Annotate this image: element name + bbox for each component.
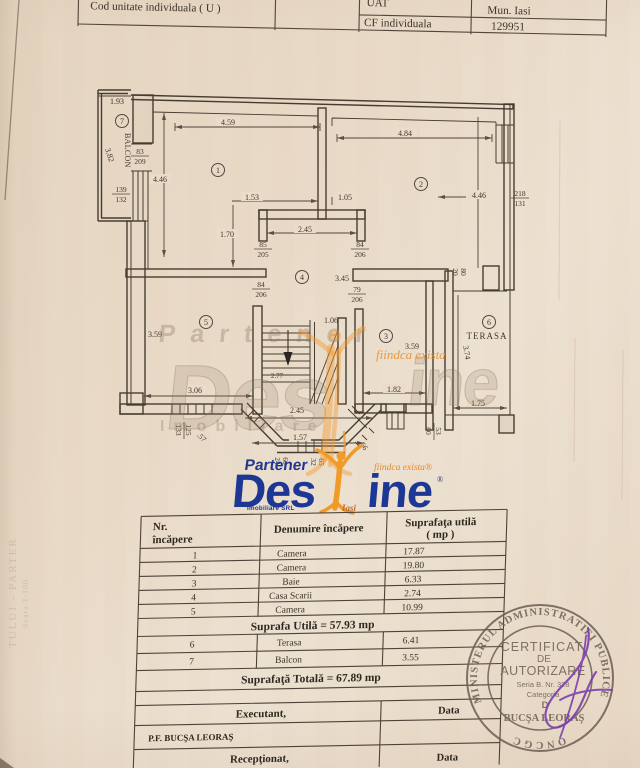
svg-text:85: 85 xyxy=(259,240,267,249)
svg-text:1.70: 1.70 xyxy=(220,230,234,239)
svg-text:Denumire încăpere: Denumire încăpere xyxy=(274,522,364,536)
svg-text:205: 205 xyxy=(257,250,269,259)
svg-text:4.59: 4.59 xyxy=(221,118,235,127)
svg-text:Camera: Camera xyxy=(275,605,306,616)
svg-text:79: 79 xyxy=(353,285,361,294)
svg-text:209: 209 xyxy=(134,157,146,166)
svg-text:încăpere: încăpere xyxy=(151,533,193,546)
svg-text:218: 218 xyxy=(514,189,526,198)
svg-text:Recepţionat,: Recepţionat, xyxy=(230,753,290,766)
svg-text:1: 1 xyxy=(192,551,197,561)
svg-text:3: 3 xyxy=(191,579,196,589)
svg-text:6.33: 6.33 xyxy=(405,575,422,585)
svg-text:TULUI - PARTER: TULUI - PARTER xyxy=(7,537,19,648)
svg-text:Data: Data xyxy=(436,752,459,763)
svg-text:Suprafa Utilă = 57.93 mp: Suprafa Utilă = 57.93 mp xyxy=(251,619,375,633)
svg-text:129951: 129951 xyxy=(491,21,525,34)
svg-text:4.46: 4.46 xyxy=(472,191,486,200)
svg-text:3.82: 3.82 xyxy=(103,147,116,163)
svg-text:Data: Data xyxy=(438,705,461,716)
svg-text:132: 132 xyxy=(115,195,127,204)
svg-text:2: 2 xyxy=(419,180,423,189)
svg-text:UAT: UAT xyxy=(366,0,388,9)
svg-text:4.84: 4.84 xyxy=(398,129,412,138)
svg-text:Imobiliare: Imobiliare xyxy=(160,418,326,435)
svg-text:Suprafaţa utilă: Suprafaţa utilă xyxy=(405,516,477,529)
svg-text:3.45: 3.45 xyxy=(335,274,349,283)
svg-text:CERTIFICAT: CERTIFICAT xyxy=(501,640,583,654)
svg-text:1.05: 1.05 xyxy=(338,193,352,202)
svg-text:131: 131 xyxy=(514,199,526,208)
svg-text:1.93: 1.93 xyxy=(110,97,124,106)
svg-text:Camera: Camera xyxy=(277,549,308,560)
svg-text:10.99: 10.99 xyxy=(401,603,423,613)
svg-text:206: 206 xyxy=(354,250,366,259)
svg-text:2.45: 2.45 xyxy=(298,225,312,234)
svg-text:4.46: 4.46 xyxy=(153,175,167,184)
svg-text:fiindca exista: fiindca exista xyxy=(376,347,446,362)
svg-text:TERASA: TERASA xyxy=(466,331,507,341)
svg-text:84: 84 xyxy=(356,240,364,249)
svg-text:®: ® xyxy=(437,475,443,484)
svg-text:4: 4 xyxy=(191,593,196,603)
svg-text:Imobiliare SRL: Imobiliare SRL xyxy=(247,505,295,512)
svg-text:Terasa: Terasa xyxy=(277,638,303,648)
svg-text:Iasi: Iasi xyxy=(341,503,357,513)
svg-text:Scara 1:100: Scara 1:100 xyxy=(21,579,30,628)
svg-text:Camera: Camera xyxy=(277,563,308,574)
svg-text:CF individuala: CF individuala xyxy=(364,17,432,30)
svg-text:19.80: 19.80 xyxy=(403,561,425,571)
svg-text:Suprafaţă Totală = 67.89 mp: Suprafaţă Totală = 67.89 mp xyxy=(241,672,381,687)
svg-text:83: 83 xyxy=(136,147,144,156)
svg-text:1.53: 1.53 xyxy=(245,193,259,202)
svg-text:( mp ): ( mp ) xyxy=(426,528,455,541)
svg-text:Balcon: Balcon xyxy=(275,655,302,666)
svg-text:Casa Scarii: Casa Scarii xyxy=(269,591,313,602)
svg-text:Executant,: Executant, xyxy=(236,708,287,721)
svg-text:53: 53 xyxy=(434,427,443,435)
svg-text:Nr.: Nr. xyxy=(153,521,168,533)
svg-text:Baie: Baie xyxy=(282,577,300,587)
svg-text:1: 1 xyxy=(216,166,220,175)
svg-text:7: 7 xyxy=(189,657,194,667)
svg-text:206: 206 xyxy=(255,290,267,299)
svg-text:P.F. BUCŞA LEORAŞ: P.F. BUCŞA LEORAŞ xyxy=(148,732,234,744)
svg-text:6: 6 xyxy=(190,640,195,650)
svg-text:3.55: 3.55 xyxy=(402,653,419,663)
svg-text:20: 20 xyxy=(451,268,460,276)
svg-text:7: 7 xyxy=(120,117,124,126)
svg-text:1.82: 1.82 xyxy=(387,385,401,394)
svg-text:2: 2 xyxy=(192,565,197,575)
svg-text:Cod unitate individuala ( U ): Cod unitate individuala ( U ) xyxy=(90,0,221,15)
svg-text:6.41: 6.41 xyxy=(403,636,420,646)
svg-text:139: 139 xyxy=(115,185,127,194)
svg-text:206: 206 xyxy=(351,295,363,304)
svg-text:fiindca exista®: fiindca exista® xyxy=(374,462,432,473)
svg-text:4: 4 xyxy=(300,273,304,282)
svg-text:BALCON: BALCON xyxy=(123,133,132,168)
svg-text:84: 84 xyxy=(257,280,265,289)
svg-text:6: 6 xyxy=(487,318,491,327)
svg-text:3: 3 xyxy=(384,332,388,341)
svg-text:Mun. Iasi: Mun. Iasi xyxy=(487,5,531,18)
svg-text:60: 60 xyxy=(424,427,433,435)
svg-text:17.87: 17.87 xyxy=(403,547,425,557)
svg-text:2.74: 2.74 xyxy=(404,589,421,599)
svg-text:5: 5 xyxy=(191,607,196,617)
